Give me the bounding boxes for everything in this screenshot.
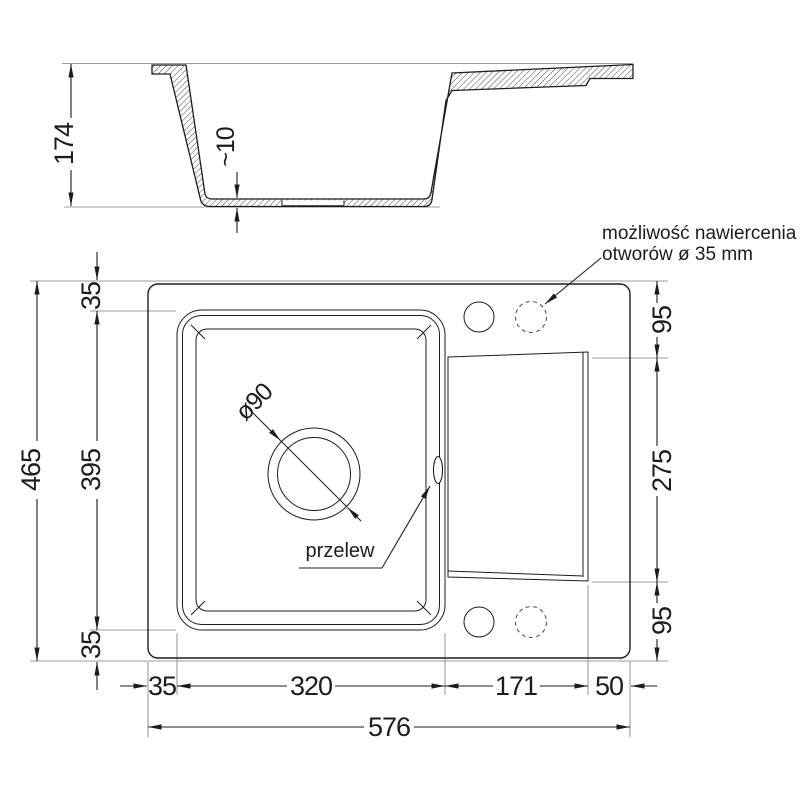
overflow-label: przelew	[306, 540, 375, 562]
faucet-hole-bottom	[464, 607, 494, 637]
dim-right-segments: 95 275 95	[647, 281, 677, 661]
dim-50-label: 50	[595, 671, 623, 701]
dim-95-top-label: 95	[647, 306, 677, 334]
drain: ø90	[230, 378, 361, 521]
dim-320-label: 320	[290, 671, 332, 701]
plan-view: ø90 przelew możliwość nawiercenia otworó…	[148, 223, 797, 658]
dim-bottom-segments: 35 320 171 50	[120, 671, 657, 701]
drill-note-line2: otworów ø 35 mm	[602, 244, 753, 265]
drill-note: możliwość nawiercenia otworów ø 35 mm	[545, 223, 797, 304]
dim-275-label: 275	[647, 450, 677, 492]
drainer-board	[448, 352, 588, 581]
basin	[177, 310, 445, 630]
dim-left-segments: 35 395 35	[76, 252, 106, 690]
section-view: 174 ~10	[49, 64, 633, 234]
drain-diameter-label: ø90	[230, 378, 278, 426]
overflow: przelew	[299, 457, 443, 569]
drill-option-hole-top	[516, 302, 547, 333]
basin-corner-chamfer-tl	[191, 325, 205, 339]
dim-171-label: 171	[495, 671, 537, 701]
dim-465-label: 465	[16, 449, 46, 491]
drill-note-line1: możliwość nawiercenia	[602, 223, 797, 244]
dim-35-bottom-label: 35	[76, 631, 106, 659]
sink-technical-drawing: 174 ~10	[0, 0, 800, 800]
basin-corner-chamfer-br	[417, 601, 431, 615]
dim-174-label: 174	[49, 122, 79, 165]
dim-bottom-thickness: ~10	[212, 127, 240, 233]
basin-corner-chamfer-tr	[417, 325, 431, 339]
dim-35-bottomrow-label: 35	[148, 671, 176, 701]
dim-10-label: ~10	[212, 127, 240, 167]
dim-395-label: 395	[76, 449, 106, 491]
basin-corner-chamfer-bl	[191, 601, 205, 615]
drain-recess	[282, 200, 344, 205]
dim-bottom-total: 576	[148, 712, 630, 742]
sink-outer-edge	[148, 284, 630, 658]
dim-section-height: 174	[49, 64, 79, 206]
dim-35-top-label: 35	[76, 282, 106, 310]
dim-left-total: 465	[16, 281, 46, 661]
faucet-hole-top	[464, 302, 494, 332]
overflow-slot	[434, 457, 443, 484]
dim-95-bottom-label: 95	[647, 607, 677, 635]
dim-576-label: 576	[368, 712, 410, 742]
plan-dimensions: 465 35 395 35 95 275 95 35	[16, 252, 677, 742]
drill-option-hole-bottom	[516, 607, 547, 638]
drawing-canvas: 174 ~10	[0, 0, 800, 800]
